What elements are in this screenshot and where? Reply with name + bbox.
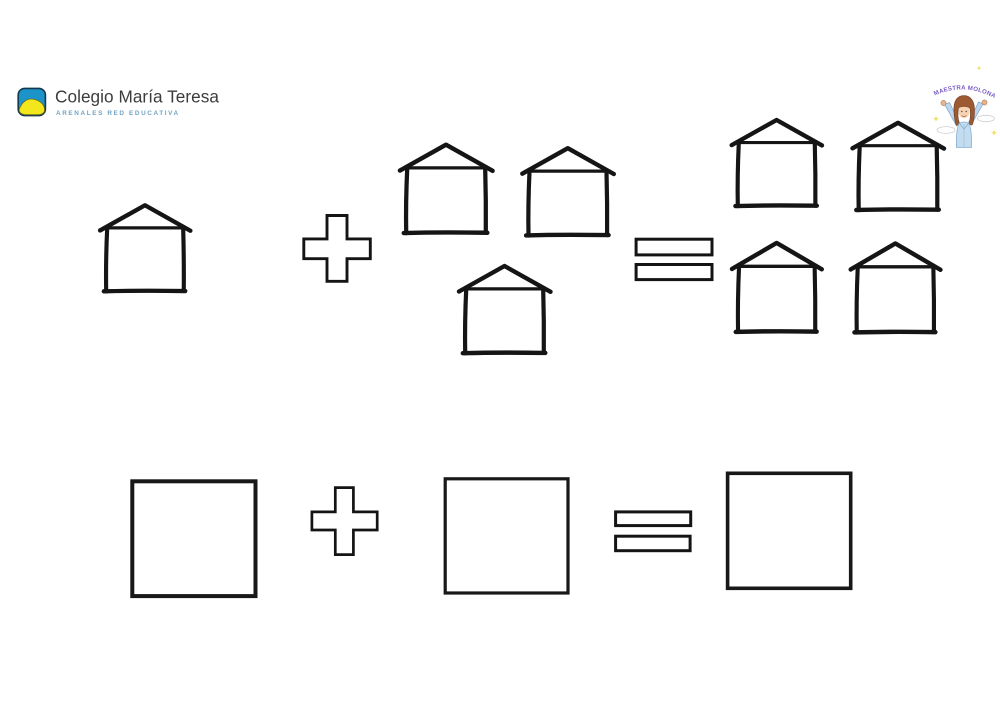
svg-text:ARENALES RED EDUCATIVA: ARENALES RED EDUCATIVA (56, 110, 180, 117)
svg-text:Colegio María Teresa: Colegio María Teresa (55, 86, 219, 106)
